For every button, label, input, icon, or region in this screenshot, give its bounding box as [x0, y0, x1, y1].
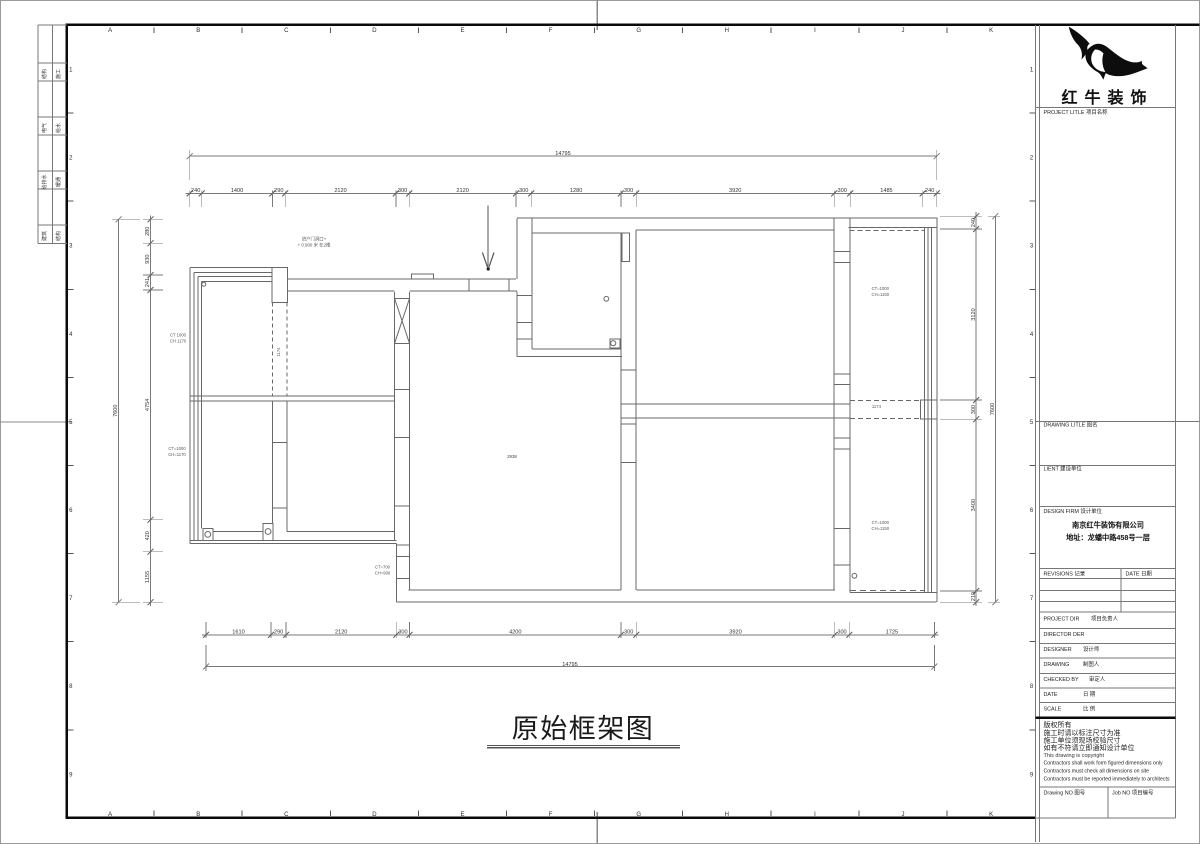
svg-text:1485: 1485: [880, 188, 892, 194]
svg-text:300: 300: [624, 188, 633, 194]
svg-text:Contractors must be reported i: Contractors must be reported immediately…: [1044, 777, 1170, 783]
svg-text:2120: 2120: [334, 188, 346, 194]
svg-text:300: 300: [838, 188, 847, 194]
svg-text:CH=900: CH=900: [375, 571, 391, 576]
svg-text:LIENT 建设单位: LIENT 建设单位: [1044, 465, 1083, 473]
svg-text:2120: 2120: [335, 630, 347, 636]
svg-text:3120: 3120: [971, 308, 977, 320]
svg-text:DRAWING: DRAWING: [1044, 662, 1070, 668]
svg-text:B: B: [196, 28, 200, 34]
svg-text:4200: 4200: [509, 630, 521, 636]
svg-text:H: H: [725, 28, 729, 34]
svg-text:结构: 结构: [55, 231, 62, 241]
svg-text:K: K: [989, 812, 993, 818]
svg-text:C: C: [284, 812, 289, 818]
svg-text:给排水: 给排水: [41, 174, 48, 189]
svg-text:300: 300: [519, 188, 528, 194]
svg-text:1174: 1174: [872, 404, 882, 409]
svg-text:A: A: [108, 812, 112, 818]
svg-text:审定人: 审定人: [1089, 675, 1106, 683]
svg-text:E: E: [460, 28, 464, 34]
svg-text:240: 240: [191, 188, 200, 194]
svg-text:240: 240: [925, 188, 934, 194]
svg-text:280: 280: [145, 227, 151, 236]
svg-text:D: D: [372, 812, 377, 818]
svg-text:14795: 14795: [555, 151, 571, 157]
svg-text:REVISIONS 记录: REVISIONS 记录: [1044, 570, 1086, 578]
svg-text:版权所有: 版权所有: [1044, 720, 1072, 729]
svg-text:This drawing is copyright: This drawing is copyright: [1044, 753, 1105, 759]
svg-text:1725: 1725: [886, 630, 898, 636]
svg-text:241: 241: [145, 278, 151, 287]
svg-text:进户门洞口+: 进户门洞口+: [302, 236, 327, 243]
svg-text:Contractors must check all dim: Contractors must check all dimensions on…: [1044, 769, 1150, 775]
svg-text:B: B: [196, 812, 200, 818]
svg-text:210: 210: [971, 592, 977, 601]
svg-text:红牛装饰: 红牛装饰: [1061, 88, 1153, 107]
svg-text:3400: 3400: [971, 499, 977, 511]
svg-text:DRAWING LITLE 图名: DRAWING LITLE 图名: [1044, 421, 1098, 429]
svg-text:CT=1000: CT=1000: [872, 286, 890, 291]
svg-text:A: A: [108, 28, 112, 34]
svg-text:给水: 给水: [55, 123, 62, 133]
svg-text:7600: 7600: [990, 403, 996, 415]
svg-text:1280: 1280: [570, 188, 582, 194]
svg-text:1155: 1155: [145, 571, 151, 583]
svg-text:比 例: 比 例: [1083, 705, 1095, 713]
svg-text:300: 300: [837, 630, 846, 636]
svg-text:F: F: [549, 28, 553, 34]
svg-text:DIRECTOR DER: DIRECTOR DER: [1044, 632, 1085, 638]
svg-text:300: 300: [398, 630, 407, 636]
svg-text:项目负责人: 项目负责人: [1091, 615, 1119, 623]
svg-text:PROJECT DIR: PROJECT DIR: [1044, 617, 1080, 623]
svg-text:930: 930: [145, 254, 151, 263]
svg-text:电气: 电气: [41, 123, 48, 133]
svg-text:1610: 1610: [232, 630, 244, 636]
svg-text:H: H: [725, 812, 729, 818]
svg-text:K: K: [989, 28, 993, 34]
svg-text:CT 1000: CT 1000: [170, 333, 187, 338]
svg-text:14795: 14795: [562, 662, 578, 668]
svg-text:F: F: [549, 812, 553, 818]
svg-text:CT=1000: CT=1000: [872, 520, 890, 525]
svg-text:Drawing NO 图号: Drawing NO 图号: [1044, 789, 1086, 797]
svg-text:PROJECT LITLE 项目名称: PROJECT LITLE 项目名称: [1044, 108, 1109, 116]
svg-text:DESIGN FIRM 设计单位: DESIGN FIRM 设计单位: [1044, 507, 1103, 515]
svg-text:DATE: DATE: [1044, 692, 1058, 698]
svg-text:设计师: 设计师: [1083, 645, 1100, 653]
svg-text:结构: 结构: [41, 69, 48, 79]
svg-text:3920: 3920: [729, 630, 741, 636]
svg-text:240: 240: [971, 218, 977, 227]
svg-text:CH 1170: CH 1170: [170, 339, 187, 344]
svg-text:CT=700: CT=700: [375, 565, 391, 570]
svg-text:DATE 日期: DATE 日期: [1126, 571, 1152, 578]
svg-text:南京红牛装饰有限公司: 南京红牛装饰有限公司: [1072, 521, 1144, 530]
svg-text:+ 0.900 米 在2楼: + 0.900 米 在2楼: [298, 242, 331, 249]
svg-text:G: G: [636, 812, 641, 818]
svg-text:CH=1170: CH=1170: [168, 452, 186, 457]
svg-text:300: 300: [398, 188, 407, 194]
svg-text:J: J: [902, 28, 905, 34]
svg-text:日 期: 日 期: [1083, 691, 1095, 698]
svg-text:施工单位须现场校验尺寸: 施工单位须现场校验尺寸: [1044, 736, 1121, 745]
svg-text:CH=1150: CH=1150: [872, 292, 890, 297]
svg-text:1400: 1400: [231, 188, 243, 194]
svg-text:2938: 2938: [507, 454, 517, 459]
svg-text:CHECKED BY: CHECKED BY: [1044, 677, 1079, 683]
svg-text:300: 300: [971, 405, 977, 414]
svg-text:3920: 3920: [729, 188, 741, 194]
svg-text:CH=1150: CH=1150: [872, 526, 890, 531]
svg-text:300: 300: [624, 630, 633, 636]
svg-text:7600: 7600: [113, 404, 119, 416]
svg-text:地址：龙蟠中路458号一层: 地址：龙蟠中路458号一层: [1066, 533, 1150, 542]
svg-text:E: E: [460, 812, 464, 818]
svg-text:制图人: 制图人: [1083, 660, 1100, 668]
svg-text:施工: 施工: [55, 69, 62, 79]
svg-text:J: J: [902, 812, 905, 818]
svg-text:C: C: [284, 28, 289, 34]
svg-text:SCALE: SCALE: [1044, 707, 1062, 713]
svg-text:Contractors shall work form fi: Contractors shall work form figured dime…: [1044, 761, 1163, 767]
svg-text:CT=1000: CT=1000: [168, 446, 186, 451]
svg-text:290: 290: [274, 630, 283, 636]
svg-text:Job NO 项目编号: Job NO 项目编号: [1112, 789, 1154, 797]
svg-text:如有不符请立即通知设计单位: 如有不符请立即通知设计单位: [1044, 743, 1135, 752]
svg-text:建筑: 建筑: [41, 231, 48, 241]
svg-text:4754: 4754: [145, 399, 151, 411]
svg-text:1174: 1174: [276, 347, 281, 357]
svg-text:D: D: [372, 28, 377, 34]
svg-text:施工时请以标注尺寸为准: 施工时请以标注尺寸为准: [1044, 728, 1121, 737]
svg-text:290: 290: [274, 188, 283, 194]
svg-text:2120: 2120: [456, 188, 468, 194]
svg-text:原始框架图: 原始框架图: [512, 714, 655, 744]
svg-text:420: 420: [145, 531, 151, 540]
svg-text:G: G: [636, 28, 641, 34]
svg-text:暖通: 暖通: [55, 177, 62, 187]
svg-text:DESIGNER: DESIGNER: [1044, 647, 1072, 653]
